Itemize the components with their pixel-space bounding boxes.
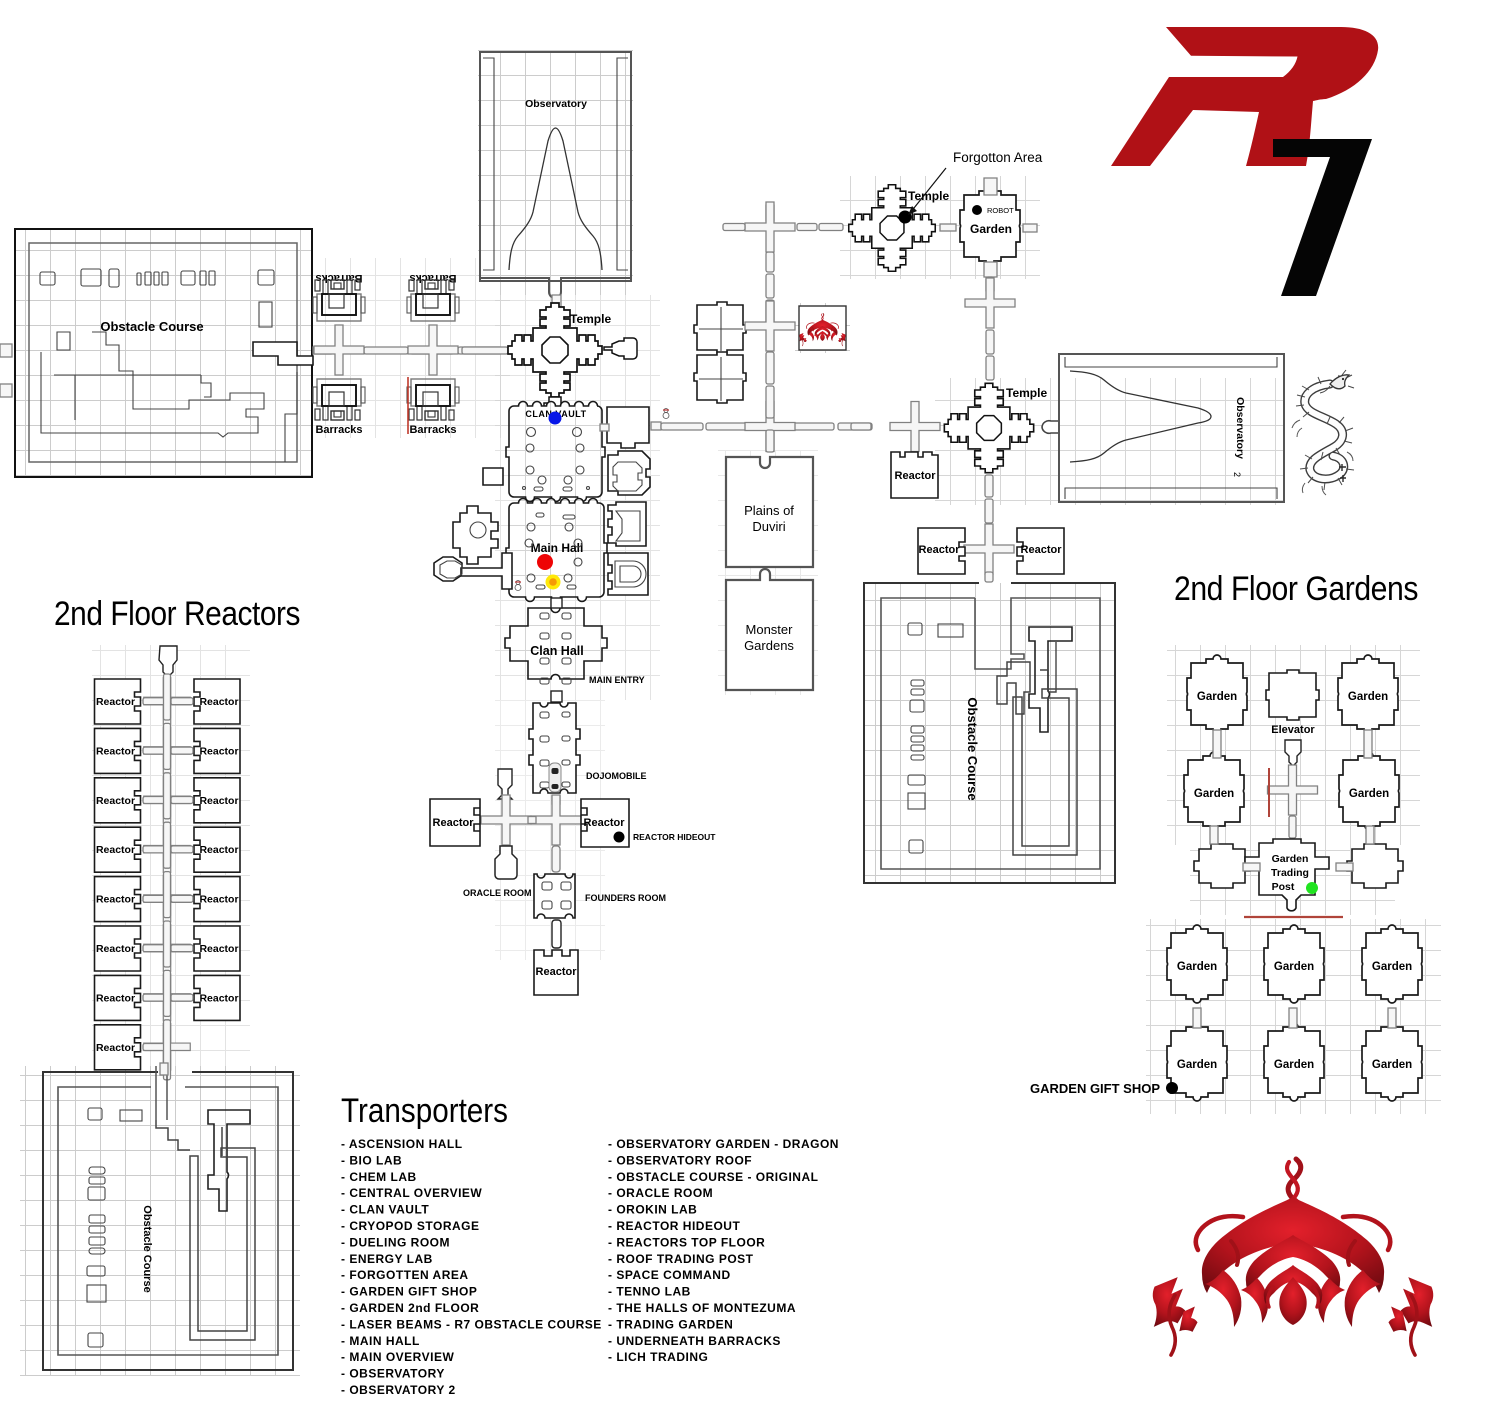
svg-text:- UNDERNEATH BARRACKS: - UNDERNEATH BARRACKS bbox=[608, 1334, 781, 1348]
svg-text:2: 2 bbox=[1232, 472, 1242, 477]
svg-text:Post: Post bbox=[1272, 881, 1295, 893]
svg-text:- THE HALLS OF MONTEZUMA: - THE HALLS OF MONTEZUMA bbox=[608, 1301, 796, 1315]
svg-text:- OBSERVATORY GARDEN - DRAGON: - OBSERVATORY GARDEN - DRAGON bbox=[608, 1137, 839, 1151]
svg-text:Duviri: Duviri bbox=[752, 519, 785, 534]
svg-text:- SPACE COMMAND: - SPACE COMMAND bbox=[608, 1268, 731, 1282]
svg-text:Garden: Garden bbox=[1349, 788, 1389, 800]
svg-text:- TENNO LAB: - TENNO LAB bbox=[608, 1285, 691, 1299]
svg-text:Garden: Garden bbox=[1348, 691, 1388, 703]
svg-text:Clan Hall: Clan Hall bbox=[530, 644, 584, 658]
svg-text:Garden: Garden bbox=[1197, 691, 1237, 703]
svg-text:Temple: Temple bbox=[908, 189, 949, 203]
svg-text:DOJOMOBILE: DOJOMOBILE bbox=[586, 771, 647, 781]
svg-text:Reactor: Reactor bbox=[96, 696, 135, 708]
svg-text:Reactor: Reactor bbox=[96, 894, 135, 906]
svg-text:- CLAN VAULT: - CLAN VAULT bbox=[341, 1203, 429, 1217]
svg-text:2nd Floor Reactors: 2nd Floor Reactors bbox=[54, 595, 300, 633]
svg-text:- OBSTACLE COURSE - ORIGINAL: - OBSTACLE COURSE - ORIGINAL bbox=[608, 1170, 818, 1184]
svg-text:Reactor: Reactor bbox=[1021, 544, 1063, 556]
svg-text:- CRYOPOD STORAGE: - CRYOPOD STORAGE bbox=[341, 1219, 480, 1233]
svg-text:Reactor: Reactor bbox=[199, 943, 238, 955]
svg-text:Transporters: Transporters bbox=[341, 1092, 508, 1130]
svg-text:Reactor: Reactor bbox=[536, 966, 578, 978]
svg-text:REACTOR HIDEOUT: REACTOR HIDEOUT bbox=[633, 832, 716, 842]
svg-text:- MAIN HALL: - MAIN HALL bbox=[341, 1334, 420, 1348]
svg-text:Reactor: Reactor bbox=[96, 844, 135, 856]
svg-text:Main Hall: Main Hall bbox=[531, 541, 584, 555]
svg-text:Reactor: Reactor bbox=[919, 544, 961, 556]
svg-text:Observatory: Observatory bbox=[525, 98, 587, 110]
svg-text:Reactor: Reactor bbox=[199, 745, 238, 757]
svg-text:- ORACLE ROOM: - ORACLE ROOM bbox=[608, 1186, 713, 1200]
svg-text:Reactor: Reactor bbox=[433, 817, 475, 829]
svg-text:Gardens: Gardens bbox=[744, 638, 794, 653]
svg-text:- GARDEN 2nd FLOOR: - GARDEN 2nd FLOOR bbox=[341, 1301, 479, 1315]
svg-text:Garden: Garden bbox=[970, 222, 1012, 236]
svg-text:Garden: Garden bbox=[1372, 961, 1412, 973]
svg-text:Temple: Temple bbox=[570, 312, 611, 326]
svg-text:- REACTOR HIDEOUT: - REACTOR HIDEOUT bbox=[608, 1219, 740, 1233]
svg-text:Elevator: Elevator bbox=[1271, 724, 1315, 736]
svg-text:Reactor: Reactor bbox=[199, 844, 238, 856]
svg-text:Garden: Garden bbox=[1177, 961, 1217, 973]
svg-text:GARDEN GIFT SHOP: GARDEN GIFT SHOP bbox=[1030, 1081, 1160, 1096]
svg-text:Garden: Garden bbox=[1272, 853, 1309, 865]
svg-text:Reactor: Reactor bbox=[199, 696, 238, 708]
svg-text:Trading: Trading bbox=[1271, 867, 1309, 879]
svg-text:Reactor: Reactor bbox=[199, 795, 238, 807]
svg-text:Reactor: Reactor bbox=[895, 470, 937, 482]
svg-text:- OROKIN LAB: - OROKIN LAB bbox=[608, 1203, 697, 1217]
svg-text:Reactor: Reactor bbox=[199, 992, 238, 1004]
svg-text:Obstacle Course: Obstacle Course bbox=[965, 697, 980, 800]
svg-text:Observatory: Observatory bbox=[1234, 397, 1246, 459]
svg-text:ORACLE ROOM: ORACLE ROOM bbox=[463, 888, 532, 898]
svg-text:- CHEM LAB: - CHEM LAB bbox=[341, 1170, 417, 1184]
svg-text:Garden: Garden bbox=[1274, 961, 1314, 973]
svg-text:- CENTRAL OVERVIEW: - CENTRAL OVERVIEW bbox=[341, 1186, 482, 1200]
svg-text:Reactor: Reactor bbox=[96, 943, 135, 955]
svg-text:- OBSERVATORY 2: - OBSERVATORY 2 bbox=[341, 1383, 456, 1397]
svg-text:- OBSERVATORY: - OBSERVATORY bbox=[341, 1367, 445, 1381]
svg-text:MAIN ENTRY: MAIN ENTRY bbox=[589, 675, 645, 685]
svg-text:Monster: Monster bbox=[746, 622, 794, 637]
svg-text:Obstacle Course: Obstacle Course bbox=[100, 319, 203, 334]
svg-text:Barracks: Barracks bbox=[315, 424, 362, 436]
svg-text:- DUELING ROOM: - DUELING ROOM bbox=[341, 1235, 450, 1249]
svg-text:- BIO LAB: - BIO LAB bbox=[341, 1153, 402, 1167]
svg-text:Garden: Garden bbox=[1194, 788, 1234, 800]
svg-text:Barracks: Barracks bbox=[409, 424, 456, 436]
svg-text:Garden: Garden bbox=[1177, 1059, 1217, 1071]
svg-text:- GARDEN GIFT SHOP: - GARDEN GIFT SHOP bbox=[341, 1285, 477, 1299]
svg-text:Forgotton Area: Forgotton Area bbox=[953, 150, 1043, 165]
svg-text:FOUNDERS ROOM: FOUNDERS ROOM bbox=[585, 893, 666, 903]
svg-text:Reactor: Reactor bbox=[96, 795, 135, 807]
svg-text:- MAIN OVERVIEW: - MAIN OVERVIEW bbox=[341, 1350, 454, 1364]
svg-text:Temple: Temple bbox=[1006, 386, 1047, 400]
svg-text:- LASER BEAMS - R7 OBSTACLE CO: - LASER BEAMS - R7 OBSTACLE COURSE bbox=[341, 1317, 602, 1331]
svg-text:2nd Floor Gardens: 2nd Floor Gardens bbox=[1174, 570, 1418, 608]
svg-text:Reactor: Reactor bbox=[199, 894, 238, 906]
svg-text:Reactor: Reactor bbox=[584, 817, 626, 829]
svg-text:- FORGOTTEN AREA: - FORGOTTEN AREA bbox=[341, 1268, 469, 1282]
svg-text:Garden: Garden bbox=[1372, 1059, 1412, 1071]
svg-text:Plains of: Plains of bbox=[744, 503, 794, 518]
svg-text:- OBSERVATORY ROOF: - OBSERVATORY ROOF bbox=[608, 1153, 752, 1167]
svg-text:- TRADING GARDEN: - TRADING GARDEN bbox=[608, 1317, 733, 1331]
svg-text:Reactor: Reactor bbox=[96, 745, 135, 757]
svg-text:Garden: Garden bbox=[1274, 1059, 1314, 1071]
svg-text:- ROOF TRADING POST: - ROOF TRADING POST bbox=[608, 1252, 754, 1266]
svg-text:ROBOT: ROBOT bbox=[987, 206, 1014, 215]
svg-text:Reactor: Reactor bbox=[96, 1042, 135, 1054]
svg-text:Reactor: Reactor bbox=[96, 992, 135, 1004]
svg-text:- LICH TRADING: - LICH TRADING bbox=[608, 1350, 708, 1364]
svg-text:- ENERGY LAB: - ENERGY LAB bbox=[341, 1252, 433, 1266]
svg-text:- ASCENSION HALL: - ASCENSION HALL bbox=[341, 1137, 463, 1151]
svg-text:- REACTORS TOP FLOOR: - REACTORS TOP FLOOR bbox=[608, 1235, 765, 1249]
svg-text:Obstacle Course: Obstacle Course bbox=[141, 1205, 153, 1292]
